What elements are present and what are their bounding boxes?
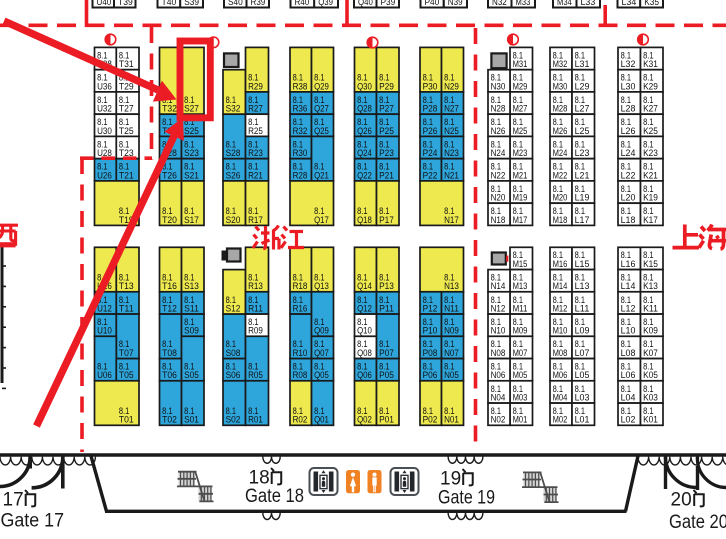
svg-text:K25: K25 (643, 126, 658, 137)
svg-text:K03: K03 (643, 392, 658, 403)
svg-text:Gate 20: Gate 20 (669, 512, 726, 533)
svg-text:R01: R01 (248, 415, 263, 426)
svg-text:Q01: Q01 (314, 415, 329, 426)
svg-text:L32: L32 (621, 59, 636, 70)
svg-text:Q14: Q14 (357, 281, 372, 292)
svg-text:N05: N05 (444, 370, 459, 381)
svg-text:N23: N23 (444, 148, 459, 159)
svg-text:S32: S32 (226, 104, 241, 115)
svg-text:L03: L03 (575, 392, 590, 403)
svg-text:L20: L20 (621, 193, 636, 204)
svg-text:M12: M12 (553, 303, 568, 314)
svg-text:N32: N32 (492, 0, 507, 8)
svg-text:L05: L05 (575, 370, 590, 381)
svg-text:P10: P10 (423, 326, 438, 337)
svg-text:N27: N27 (444, 104, 459, 115)
svg-text:U32: U32 (97, 104, 112, 115)
svg-text:N07: N07 (444, 348, 459, 359)
svg-text:T27: T27 (119, 104, 134, 115)
svg-text:K09: K09 (643, 326, 658, 337)
svg-text:T13: T13 (119, 281, 134, 292)
svg-text:S06: S06 (226, 370, 241, 381)
svg-text:L15: L15 (575, 259, 590, 270)
svg-text:T11: T11 (119, 303, 134, 314)
svg-text:K27: K27 (643, 104, 658, 115)
svg-text:L10: L10 (621, 326, 636, 337)
svg-text:P24: P24 (423, 148, 438, 159)
svg-text:N24: N24 (491, 148, 506, 159)
svg-text:T39: T39 (118, 0, 133, 8)
svg-text:P05: P05 (379, 370, 394, 381)
svg-text:P29: P29 (379, 81, 394, 92)
svg-text:Q08: Q08 (357, 348, 372, 359)
svg-text:S21: S21 (184, 170, 199, 181)
svg-text:L22: L22 (621, 170, 636, 181)
svg-text:R39: R39 (251, 0, 266, 8)
svg-text:Q25: Q25 (314, 126, 329, 137)
svg-text:L08: L08 (621, 348, 636, 359)
svg-text:M14: M14 (553, 281, 568, 292)
svg-text:R36: R36 (293, 104, 308, 115)
svg-text:R23: R23 (248, 148, 263, 159)
svg-text:R05: R05 (248, 370, 263, 381)
svg-text:S20: S20 (226, 215, 241, 226)
svg-text:K05: K05 (643, 370, 658, 381)
svg-text:T12: T12 (162, 303, 177, 314)
svg-text:L07: L07 (575, 348, 590, 359)
svg-text:S17: S17 (184, 215, 199, 226)
svg-text:N20: N20 (491, 193, 506, 204)
svg-text:P21: P21 (379, 170, 394, 181)
svg-text:17: 17 (3, 490, 24, 511)
svg-text:L26: L26 (621, 126, 636, 137)
svg-text:M01: M01 (513, 415, 528, 426)
svg-text:M28: M28 (553, 104, 568, 115)
svg-text:19: 19 (440, 469, 461, 490)
svg-text:M24: M24 (553, 148, 568, 159)
svg-text:L13: L13 (575, 281, 590, 292)
svg-text:L23: L23 (575, 148, 590, 159)
svg-text:Gate 19: Gate 19 (438, 488, 495, 509)
svg-text:R28: R28 (293, 170, 308, 181)
svg-text:L21: L21 (575, 170, 590, 181)
svg-text:N21: N21 (444, 170, 459, 181)
svg-text:L14: L14 (621, 281, 636, 292)
svg-text:M04: M04 (553, 392, 568, 403)
svg-text:P11: P11 (379, 303, 394, 314)
svg-text:Q12: Q12 (357, 303, 372, 314)
svg-text:Q30: Q30 (357, 81, 372, 92)
svg-text:Q29: Q29 (314, 81, 329, 92)
svg-text:R18: R18 (293, 281, 308, 292)
svg-text:S39: S39 (184, 0, 199, 8)
svg-text:M16: M16 (553, 259, 568, 270)
svg-text:Q17: Q17 (314, 215, 329, 226)
svg-text:N01: N01 (444, 415, 459, 426)
svg-text:T01: T01 (119, 415, 134, 426)
svg-text:S28: S28 (226, 148, 241, 159)
svg-text:N06: N06 (491, 370, 506, 381)
svg-text:N30: N30 (491, 81, 506, 92)
svg-text:M11: M11 (513, 303, 528, 314)
svg-text:K07: K07 (643, 348, 658, 359)
svg-text:P06: P06 (423, 370, 438, 381)
svg-text:L04: L04 (621, 392, 636, 403)
svg-text:Q24: Q24 (357, 148, 372, 159)
svg-text:T05: T05 (119, 370, 134, 381)
svg-text:L24: L24 (621, 148, 636, 159)
svg-text:L02: L02 (621, 415, 636, 426)
svg-text:M31: M31 (513, 59, 528, 70)
svg-text:L28: L28 (621, 104, 636, 115)
svg-text:K29: K29 (643, 81, 658, 92)
svg-text:M23: M23 (513, 148, 528, 159)
svg-text:T02: T02 (162, 415, 177, 426)
svg-text:Q28: Q28 (357, 104, 372, 115)
svg-text:M02: M02 (553, 415, 568, 426)
svg-text:R16: R16 (293, 303, 308, 314)
svg-text:Q39: Q39 (318, 0, 333, 8)
svg-text:S09: S09 (184, 326, 199, 337)
svg-text:T29: T29 (119, 81, 134, 92)
svg-text:T31: T31 (119, 59, 134, 70)
svg-text:N02: N02 (491, 415, 506, 426)
svg-text:P25: P25 (379, 126, 394, 137)
svg-text:K31: K31 (643, 59, 658, 70)
svg-text:P02: P02 (423, 415, 438, 426)
svg-text:T08: T08 (162, 348, 177, 359)
svg-text:Q07: Q07 (314, 348, 329, 359)
svg-text:Q26: Q26 (357, 126, 372, 137)
svg-text:T06: T06 (162, 370, 177, 381)
svg-text:R38: R38 (293, 81, 308, 92)
svg-text:R02: R02 (293, 415, 308, 426)
svg-text:S40: S40 (228, 0, 243, 8)
svg-text:L30: L30 (621, 81, 636, 92)
svg-text:T21: T21 (119, 170, 134, 181)
svg-text:M27: M27 (513, 104, 528, 115)
svg-text:M20: M20 (553, 193, 568, 204)
svg-text:M10: M10 (553, 326, 568, 337)
svg-text:L06: L06 (621, 370, 636, 381)
svg-text:K11: K11 (643, 303, 658, 314)
svg-text:U10: U10 (97, 326, 112, 337)
svg-text:R09: R09 (248, 326, 263, 337)
svg-text:R27: R27 (248, 104, 263, 115)
svg-text:T16: T16 (162, 281, 177, 292)
svg-text:S05: S05 (184, 370, 199, 381)
svg-text:R30: R30 (293, 148, 308, 159)
svg-text:Q27: Q27 (314, 104, 329, 115)
svg-text:T25: T25 (119, 126, 134, 137)
svg-text:L29: L29 (575, 81, 590, 92)
svg-text:Q09: Q09 (314, 326, 329, 337)
svg-text:N12: N12 (491, 303, 506, 314)
svg-text:R08: R08 (293, 370, 308, 381)
svg-text:T07: T07 (119, 348, 134, 359)
svg-text:L11: L11 (575, 303, 590, 314)
svg-text:Q13: Q13 (314, 281, 329, 292)
svg-text:Q22: Q22 (357, 170, 372, 181)
svg-text:M17: M17 (513, 215, 528, 226)
svg-text:Q18: Q18 (357, 215, 372, 226)
svg-text:S26: S26 (226, 170, 241, 181)
svg-text:U40: U40 (97, 0, 112, 8)
svg-text:S25: S25 (184, 126, 199, 137)
svg-text:20: 20 (671, 490, 692, 511)
svg-text:L09: L09 (575, 326, 590, 337)
svg-text:N25: N25 (444, 126, 459, 137)
svg-text:M13: M13 (513, 281, 528, 292)
svg-text:N04: N04 (491, 392, 506, 403)
svg-text:Gate 17: Gate 17 (1, 511, 65, 532)
svg-text:Q02: Q02 (357, 415, 372, 426)
svg-text:P07: P07 (379, 348, 394, 359)
svg-text:K21: K21 (643, 170, 658, 181)
svg-text:R17: R17 (248, 215, 263, 226)
svg-text:S13: S13 (184, 281, 199, 292)
svg-text:M30: M30 (553, 81, 568, 92)
svg-text:L18: L18 (621, 215, 636, 226)
svg-text:P17: P17 (379, 215, 394, 226)
svg-text:M07: M07 (513, 348, 528, 359)
svg-text:S02: S02 (226, 415, 241, 426)
svg-text:S08: S08 (226, 348, 241, 359)
svg-text:R21: R21 (248, 170, 263, 181)
svg-text:M32: M32 (553, 59, 568, 70)
svg-text:Q21: Q21 (314, 170, 329, 181)
svg-text:M33: M33 (516, 0, 531, 8)
svg-text:P08: P08 (423, 348, 438, 359)
svg-text:K17: K17 (643, 215, 658, 226)
svg-text:R10: R10 (293, 348, 308, 359)
svg-text:L33: L33 (581, 0, 596, 8)
svg-text:S12: S12 (226, 303, 241, 314)
svg-text:T40: T40 (162, 0, 177, 8)
svg-text:U26: U26 (97, 170, 112, 181)
svg-text:M21: M21 (513, 170, 528, 181)
svg-text:P28: P28 (423, 104, 438, 115)
svg-text:N08: N08 (491, 348, 506, 359)
svg-text:N29: N29 (444, 81, 459, 92)
svg-text:M29: M29 (513, 81, 528, 92)
svg-text:T26: T26 (162, 170, 177, 181)
svg-text:Q06: Q06 (357, 370, 372, 381)
svg-text:M34: M34 (557, 0, 572, 8)
svg-text:U12: U12 (97, 303, 112, 314)
svg-text:M03: M03 (513, 392, 528, 403)
svg-text:N09: N09 (444, 326, 459, 337)
svg-text:P40: P40 (425, 0, 440, 8)
svg-text:R32: R32 (293, 126, 308, 137)
svg-text:R40: R40 (295, 0, 310, 8)
svg-text:R11: R11 (248, 303, 263, 314)
svg-text:P39: P39 (381, 0, 396, 8)
svg-text:L01: L01 (575, 415, 590, 426)
svg-text:N10: N10 (491, 326, 506, 337)
svg-text:K35: K35 (644, 0, 659, 8)
svg-text:R29: R29 (248, 81, 263, 92)
svg-text:Q40: Q40 (358, 0, 373, 8)
svg-text:U36: U36 (97, 81, 112, 92)
svg-text:T32: T32 (162, 104, 177, 115)
svg-text:P22: P22 (423, 170, 438, 181)
svg-text:N28: N28 (491, 104, 506, 115)
svg-text:K15: K15 (643, 259, 658, 270)
svg-text:S27: S27 (184, 104, 199, 115)
svg-text:N14: N14 (491, 281, 506, 292)
svg-text:M08: M08 (553, 348, 568, 359)
svg-text:R13: R13 (248, 281, 263, 292)
svg-text:M26: M26 (553, 126, 568, 137)
svg-text:M15: M15 (513, 259, 528, 270)
svg-text:K23: K23 (643, 148, 658, 159)
svg-text:P30: P30 (423, 81, 438, 92)
svg-text:N13: N13 (444, 281, 459, 292)
svg-text:M18: M18 (553, 215, 568, 226)
svg-text:P23: P23 (379, 148, 394, 159)
svg-text:K19: K19 (643, 193, 658, 204)
svg-text:S01: S01 (184, 415, 199, 426)
svg-text:N39: N39 (448, 0, 463, 8)
svg-text:N26: N26 (491, 126, 506, 137)
svg-text:U30: U30 (97, 126, 112, 137)
svg-text:M09: M09 (513, 326, 528, 337)
svg-text:T20: T20 (162, 215, 177, 226)
svg-text:P27: P27 (379, 104, 394, 115)
svg-text:L16: L16 (621, 259, 636, 270)
svg-text:L34: L34 (622, 0, 637, 8)
svg-text:N22: N22 (491, 170, 506, 181)
svg-text:P26: P26 (423, 126, 438, 137)
svg-text:K13: K13 (643, 281, 658, 292)
svg-text:Q10: Q10 (357, 326, 372, 337)
svg-text:L31: L31 (575, 59, 590, 70)
svg-text:K01: K01 (643, 415, 658, 426)
svg-text:M05: M05 (513, 370, 528, 381)
svg-text:S23: S23 (184, 148, 199, 159)
svg-text:P12: P12 (423, 303, 438, 314)
svg-text:M19: M19 (513, 193, 528, 204)
svg-text:R25: R25 (248, 126, 263, 137)
svg-text:N17: N17 (444, 215, 459, 226)
svg-text:Gate 18: Gate 18 (245, 486, 304, 507)
svg-text:L25: L25 (575, 126, 590, 137)
svg-text:U06: U06 (97, 370, 112, 381)
svg-text:L27: L27 (575, 104, 590, 115)
svg-text:P13: P13 (379, 281, 394, 292)
svg-text:Q05: Q05 (314, 370, 329, 381)
svg-text:L17: L17 (575, 215, 590, 226)
svg-text:S11: S11 (184, 303, 199, 314)
svg-text:L12: L12 (621, 303, 636, 314)
svg-text:N11: N11 (444, 303, 459, 314)
svg-text:P01: P01 (379, 415, 394, 426)
svg-text:M22: M22 (553, 170, 568, 181)
svg-text:L19: L19 (575, 193, 590, 204)
svg-text:M25: M25 (513, 126, 528, 137)
svg-text:N18: N18 (491, 215, 506, 226)
svg-text:M06: M06 (553, 370, 568, 381)
